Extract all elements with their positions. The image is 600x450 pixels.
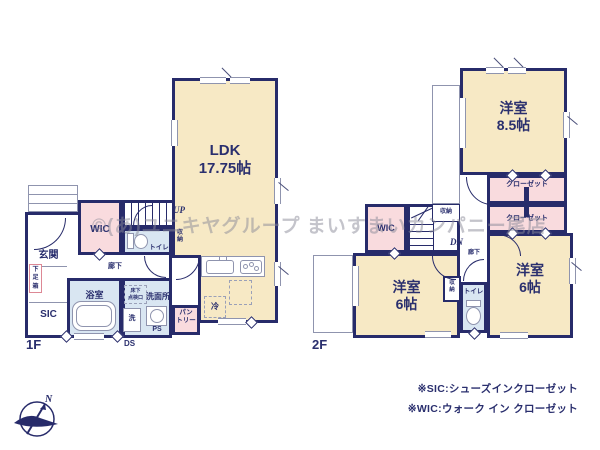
floor-plan-canvas: LDK17.75帖 UP WIC 玄関 下 足 箱 SIC トイレ 収 納 廊下… bbox=[0, 0, 600, 450]
toilet-tank-2f bbox=[466, 300, 481, 307]
sic-divider-line bbox=[29, 302, 67, 303]
shoe-box-label: 下 足 箱 bbox=[29, 266, 42, 291]
window bbox=[230, 77, 250, 84]
washroom-label: 洗面所 bbox=[143, 292, 173, 302]
fridge-label: 冷 bbox=[204, 302, 226, 312]
window-tick bbox=[514, 58, 524, 68]
bedroom-6-left-name: 洋室 bbox=[393, 279, 421, 295]
toilet-2f-label: トイレ bbox=[460, 288, 487, 296]
toilet-bowl-2f bbox=[466, 307, 481, 325]
window-tick bbox=[222, 68, 232, 78]
legend-wic: ※WIC:ウォーク イン クローゼット bbox=[388, 399, 578, 419]
bedroom-85-name: 洋室 bbox=[500, 100, 528, 116]
hallway-2f-label: 廊下 bbox=[461, 250, 487, 257]
ldk-size: 17.75帖 bbox=[199, 160, 252, 177]
bedroom-6-right-label: 洋室6帖 bbox=[487, 262, 573, 296]
bedroom-6-left-label: 洋室6帖 bbox=[353, 279, 460, 313]
legend: ※SIC:シューズインクローゼット ※WIC:ウォーク イン クローゼット bbox=[388, 379, 578, 419]
kitchen-sink bbox=[206, 260, 234, 274]
closet-upper-label: クローゼット bbox=[487, 181, 567, 189]
window bbox=[425, 331, 451, 338]
vanity-sink bbox=[150, 309, 164, 323]
bedroom-85-label: 洋室8.5帖 bbox=[460, 100, 567, 134]
bedroom-6-right-name: 洋室 bbox=[516, 262, 544, 278]
window bbox=[74, 333, 104, 340]
cupboard-space bbox=[229, 280, 252, 305]
north-compass-icon: N bbox=[12, 390, 64, 444]
kitchen-faucet bbox=[219, 256, 227, 261]
hallway-1f-label: 廊下 bbox=[100, 263, 130, 271]
stove-burner bbox=[243, 264, 248, 269]
porch-step-line bbox=[28, 203, 78, 204]
bedroom-6-right-size: 6帖 bbox=[519, 279, 541, 295]
washer-label: 洗 bbox=[123, 315, 141, 323]
stove-burner bbox=[249, 262, 254, 267]
window bbox=[218, 318, 246, 325]
legend-sic: ※SIC:シューズインクローゼット bbox=[388, 379, 578, 399]
bedroom-85-size: 8.5帖 bbox=[497, 117, 530, 133]
window bbox=[200, 77, 226, 84]
ldk-label: LDK17.75帖 bbox=[172, 142, 278, 178]
balcony-lower bbox=[313, 255, 353, 333]
window-tick bbox=[494, 58, 504, 68]
window bbox=[500, 332, 528, 339]
balcony-upper bbox=[432, 85, 460, 204]
compass-n-text: N bbox=[44, 394, 53, 405]
floor2-label: 2F bbox=[312, 337, 327, 353]
window bbox=[486, 67, 504, 74]
stair-tread-line bbox=[409, 245, 433, 246]
ldk-door-arc bbox=[176, 256, 200, 280]
stove-burner bbox=[254, 266, 259, 271]
floor1-label: 1F bbox=[26, 337, 41, 353]
dn-label: DN bbox=[450, 237, 463, 248]
bedroom-6-left-size: 6帖 bbox=[396, 296, 418, 312]
ldk-name: LDK bbox=[210, 142, 241, 159]
watermark-text: ©(あ)ユニキヤグループ まいすまいカンパニー尾店 bbox=[92, 211, 547, 238]
sic-label: SIC bbox=[30, 309, 67, 321]
stair-tread-line bbox=[409, 238, 433, 239]
bath-label: 浴室 bbox=[67, 290, 122, 301]
pantry-label: パン トリー bbox=[172, 309, 200, 325]
toilet-1f-label: トイレ bbox=[146, 244, 172, 252]
porch-step-line bbox=[28, 194, 78, 195]
window bbox=[508, 67, 526, 74]
genkan-label: 玄関 bbox=[30, 250, 67, 262]
ps-label: PS bbox=[147, 326, 167, 334]
ds-label: DS bbox=[124, 339, 135, 349]
bathtub-inner bbox=[76, 305, 112, 327]
small-storage-label: 収 納 bbox=[446, 280, 458, 293]
porch-steps bbox=[28, 185, 78, 212]
toilet-2f-door-arc bbox=[463, 259, 484, 281]
